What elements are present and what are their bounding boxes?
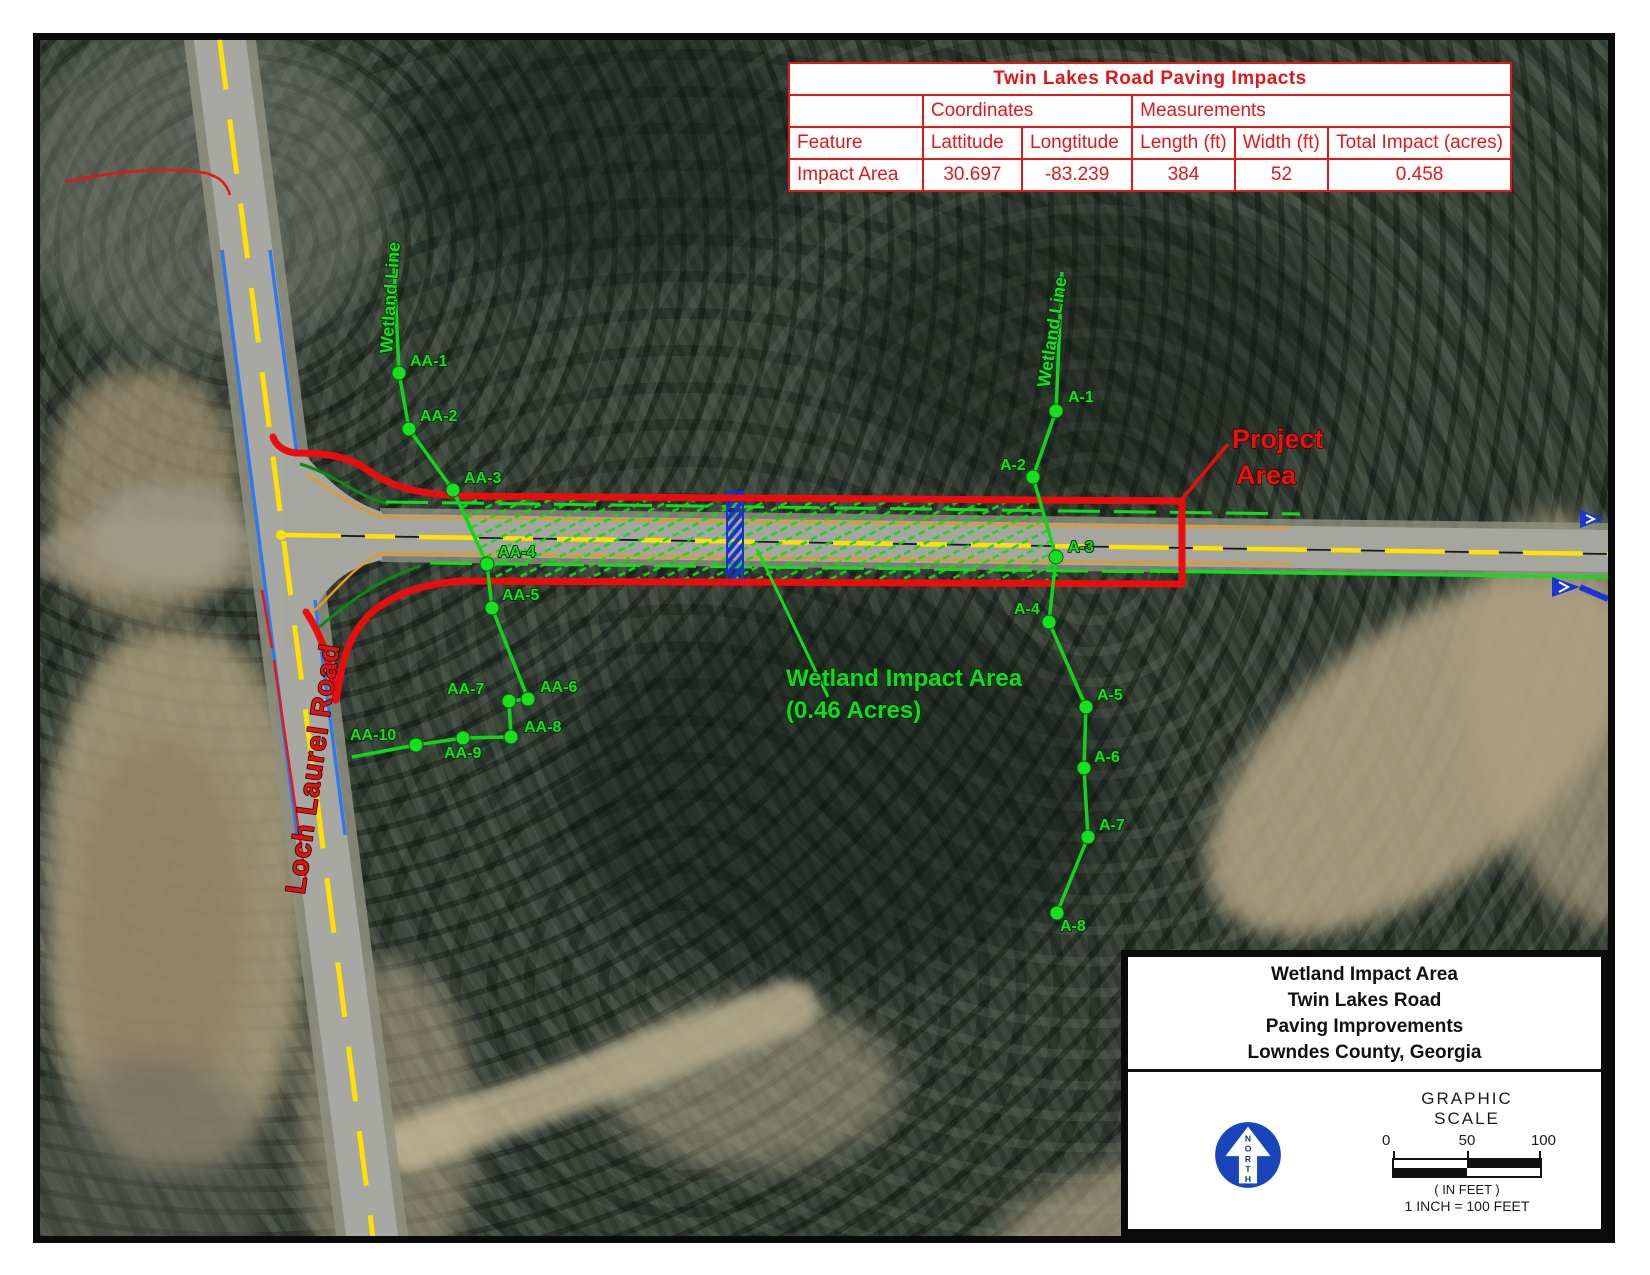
table-group-coordinates: Coordinates	[923, 95, 1132, 127]
north-arrow-icon: N O R T H	[1214, 1121, 1282, 1189]
point-label-aa2: AA-2	[420, 408, 457, 425]
table-group-measurements: Measurements	[1132, 95, 1511, 127]
table-col-width: Width (ft)	[1235, 127, 1328, 159]
table-col-lattitude: Lattitude	[923, 127, 1022, 159]
table-col-feature: Feature	[789, 127, 923, 159]
title-block-divider	[1128, 1069, 1601, 1072]
scale-tick-100: 100	[1531, 1132, 1556, 1149]
culvert-marker	[727, 492, 743, 584]
point-label-aa5: AA-5	[502, 587, 539, 604]
point-label-a8: A-8	[1060, 918, 1086, 935]
point-label-aa1: AA-1	[410, 353, 447, 370]
aerial-photo-background: Project Area Wetland Impact Area (0.46 A…	[40, 40, 1608, 1236]
point-label-aa7: AA-7	[447, 681, 484, 698]
project-area-label-line1: Project	[1232, 424, 1324, 454]
flow-arrow-icon	[1552, 577, 1608, 599]
table-empty-cell	[789, 95, 923, 127]
project-area-leader	[1183, 444, 1228, 498]
point-label-aa6: AA-6	[540, 679, 577, 696]
cell-lattitude: 30.697	[923, 159, 1022, 191]
impact-label-line2: (0.46 Acres)	[786, 697, 921, 724]
north-letter: R	[1245, 1154, 1251, 1164]
point-label-a2: A-2	[1000, 457, 1026, 474]
wetland-line-label-right: Wetland Line	[1033, 275, 1070, 388]
table-row: Impact Area 30.697 -83.239 384 52 0.458	[789, 159, 1511, 191]
north-letter: O	[1245, 1144, 1252, 1154]
table-col-total-impact: Total Impact (acres)	[1328, 127, 1511, 159]
table-title: Twin Lakes Road Paving Impacts	[789, 63, 1511, 95]
table-col-longtitude: Longtitude	[1022, 127, 1132, 159]
impacts-table: Twin Lakes Road Paving Impacts Coordinat…	[788, 62, 1512, 192]
graphic-scale: GRAPHIC SCALE 0 50 100 ( IN FEET )	[1386, 1089, 1548, 1214]
scale-ratio: 1 INCH = 100 FEET	[1386, 1198, 1548, 1214]
point-label-aa3: AA-3	[464, 470, 501, 487]
cell-longtitude: -83.239	[1022, 159, 1132, 191]
point-label-a6: A-6	[1094, 749, 1120, 766]
cell-length: 384	[1132, 159, 1235, 191]
point-label-a5: A-5	[1097, 687, 1123, 704]
map-frame: Project Area Wetland Impact Area (0.46 A…	[33, 33, 1615, 1243]
scale-tick-0: 0	[1382, 1132, 1390, 1149]
wetland-points-right	[1026, 404, 1095, 920]
title-block: Wetland Impact Area Twin Lakes Road Pavi…	[1121, 950, 1608, 1236]
scale-tick-50: 50	[1459, 1132, 1476, 1149]
point-label-aa8: AA-8	[524, 719, 561, 736]
graphic-scale-title: GRAPHIC SCALE	[1386, 1089, 1548, 1129]
north-letter: N	[1245, 1133, 1251, 1143]
point-label-a7: A-7	[1099, 817, 1125, 834]
point-label-a4: A-4	[1014, 601, 1040, 618]
cell-feature: Impact Area	[789, 159, 923, 191]
map-sheet: Project Area Wetland Impact Area (0.46 A…	[0, 0, 1650, 1275]
wetland-line-label-left: Wetland Line	[376, 241, 404, 354]
north-letter: H	[1245, 1174, 1251, 1184]
wetland-impact-hatch	[457, 497, 1062, 584]
point-label-aa4: AA-4	[498, 544, 535, 561]
point-label-aa10: AA-10	[350, 727, 396, 744]
title-line-4: Lowndes County, Georgia	[1128, 1040, 1601, 1066]
cell-width: 52	[1235, 159, 1328, 191]
point-label-aa9: AA-9	[444, 745, 481, 762]
title-line-1: Wetland Impact Area	[1128, 962, 1601, 988]
scale-units: ( IN FEET )	[1386, 1182, 1548, 1197]
impact-label-line1: Wetland Impact Area	[786, 665, 1023, 692]
north-letter: T	[1245, 1164, 1251, 1174]
title-line-3: Paving Improvements	[1128, 1014, 1601, 1040]
title-line-2: Twin Lakes Road	[1128, 988, 1601, 1014]
cell-total-impact: 0.458	[1328, 159, 1511, 191]
project-area-label-line2: Area	[1236, 460, 1297, 490]
table-col-length: Length (ft)	[1132, 127, 1235, 159]
point-label-a1: A-1	[1068, 389, 1094, 406]
centerline-start-marker	[276, 530, 286, 540]
point-label-a3: A-3	[1068, 539, 1094, 556]
scale-bar	[1392, 1158, 1542, 1178]
